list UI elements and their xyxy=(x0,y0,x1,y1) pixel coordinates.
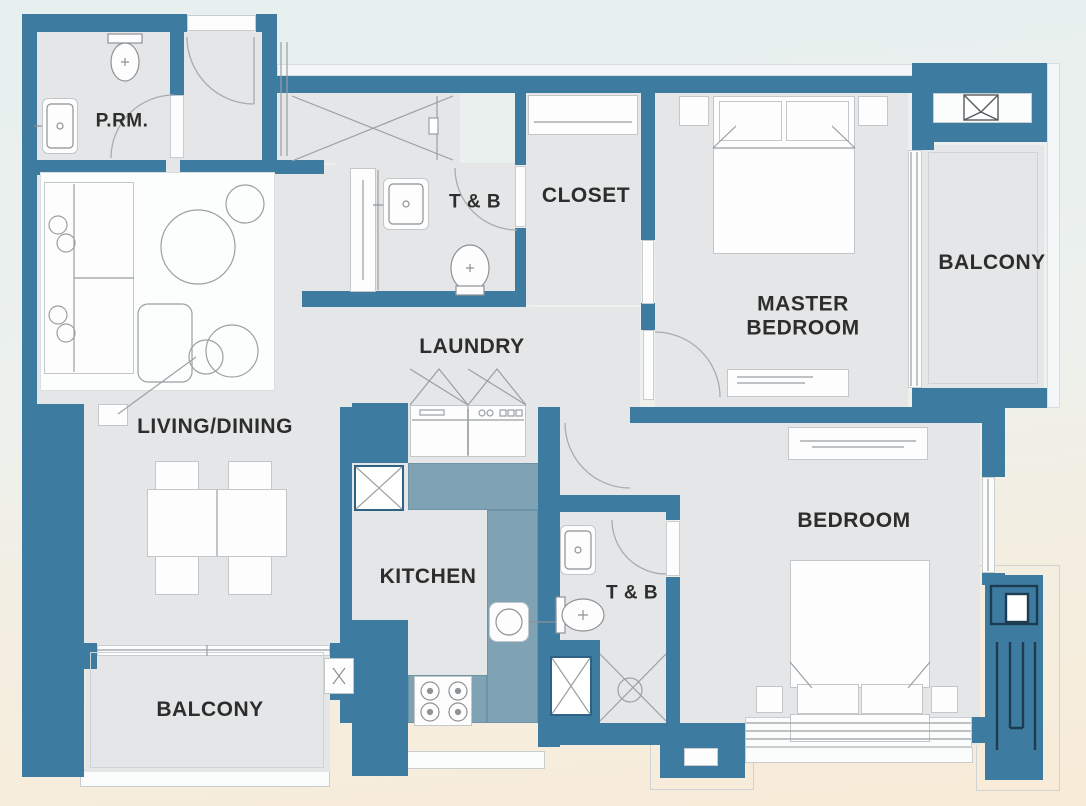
bedroom-headboard xyxy=(790,714,930,742)
master-nightstand-right xyxy=(858,96,888,126)
wall-closet-right-b xyxy=(641,303,655,330)
bedroom-pillow-right xyxy=(861,684,923,714)
master-bench xyxy=(727,369,849,397)
wall-prm-right xyxy=(170,30,184,95)
top-ledge-band xyxy=(277,64,918,76)
tb1-door-opening xyxy=(515,166,526,227)
wall-entry-right xyxy=(262,30,277,160)
label-closet: CLOSET xyxy=(542,184,630,208)
prm-door-opening xyxy=(170,95,184,158)
kitchen-sill-band xyxy=(400,751,545,769)
wall-kitchen-block-top xyxy=(352,403,408,463)
wall-window-stub xyxy=(972,717,985,743)
entry-door-opening xyxy=(187,15,256,31)
water-heater xyxy=(324,658,354,694)
wall-bedroom-top xyxy=(630,407,985,423)
bedroom-right-window xyxy=(982,477,995,573)
dining-chair-4 xyxy=(228,555,272,595)
sofa xyxy=(44,182,134,374)
wall-tb2-right-a xyxy=(666,495,680,520)
bedroom-nightstand-right xyxy=(931,686,958,713)
tb2-door-opening xyxy=(666,521,680,576)
bedroom-cabinet xyxy=(788,427,928,460)
kitchen-sink xyxy=(489,602,529,642)
label-master-bedroom: MASTER BEDROOM xyxy=(746,292,859,339)
living-side-table xyxy=(98,404,128,426)
wall-tb2-top xyxy=(548,495,666,512)
label-kitchen: KITCHEN xyxy=(380,565,477,589)
bedroom-sill-band xyxy=(745,747,973,763)
balcony-bottom-railing xyxy=(80,770,330,787)
label-master-line1: MASTER xyxy=(746,292,859,316)
bedroom-pillow-left xyxy=(797,684,859,714)
wall-left-pillar xyxy=(22,404,84,777)
wall-top-main xyxy=(277,76,918,93)
ac-niche-opening xyxy=(933,93,1032,123)
master-pillow-left xyxy=(719,101,782,141)
wall-bedroom-right-a xyxy=(982,407,1005,477)
wall-tb1-right-b xyxy=(515,228,526,307)
tb2-sink xyxy=(560,525,596,575)
label-balcony-right: BALCONY xyxy=(938,251,1045,275)
wall-tb1-bottom xyxy=(302,291,521,307)
master-door-leaf xyxy=(643,330,654,400)
wall-tb2-bottom xyxy=(540,723,745,745)
tb2-shaft xyxy=(550,656,592,716)
wall-tb1-right-a xyxy=(515,92,526,165)
kitchen-shaft xyxy=(354,465,404,511)
wall-kitchen-block-bottom xyxy=(352,620,408,776)
label-toilet-bath-2: T & B xyxy=(606,582,658,603)
kitchen-counter-top xyxy=(408,463,547,510)
tb1-sink xyxy=(383,178,429,230)
label-toilet-bath-1: T & B xyxy=(449,191,501,212)
wall-balcony-right-bottom xyxy=(912,388,1047,408)
wall-left xyxy=(22,14,37,404)
master-pillow-right xyxy=(786,101,849,141)
label-master-line2: BEDROOM xyxy=(746,316,859,340)
master-nightstand-left xyxy=(679,96,709,126)
label-laundry: LAUNDRY xyxy=(419,335,524,359)
dining-table xyxy=(147,489,287,557)
protrusion-notch xyxy=(684,748,718,766)
label-bedroom: BEDROOM xyxy=(797,509,910,533)
tb1-shower-strip xyxy=(350,168,376,292)
closet-door-leaf xyxy=(642,240,654,304)
storage-floor xyxy=(277,92,460,163)
stove xyxy=(414,676,472,726)
floor-plan-canvas: P.RM. T & B CLOSET MASTER BEDROOM BALCON… xyxy=(0,0,1086,806)
wall-ac-ledge xyxy=(985,575,1043,780)
wall-tb2-right-b xyxy=(666,577,680,745)
wall-top-prm xyxy=(22,14,187,32)
bedroom-nightstand-left xyxy=(756,686,783,713)
wall-master-balcony-post xyxy=(912,63,934,150)
right-railing-band xyxy=(1047,63,1060,408)
dining-chair-3 xyxy=(155,555,199,595)
label-balcony-bottom: BALCONY xyxy=(156,698,263,722)
closet-cabinet xyxy=(528,95,638,135)
bedroom-bed xyxy=(790,560,930,688)
prm-sink xyxy=(42,98,78,154)
dryer-unit xyxy=(468,405,526,457)
washer-unit xyxy=(410,405,468,457)
master-balcony-window xyxy=(908,150,922,388)
wall-closet-right-a xyxy=(641,93,655,240)
label-living-dining: LIVING/DINING xyxy=(137,415,293,439)
label-powder-room: P.RM. xyxy=(96,110,149,131)
